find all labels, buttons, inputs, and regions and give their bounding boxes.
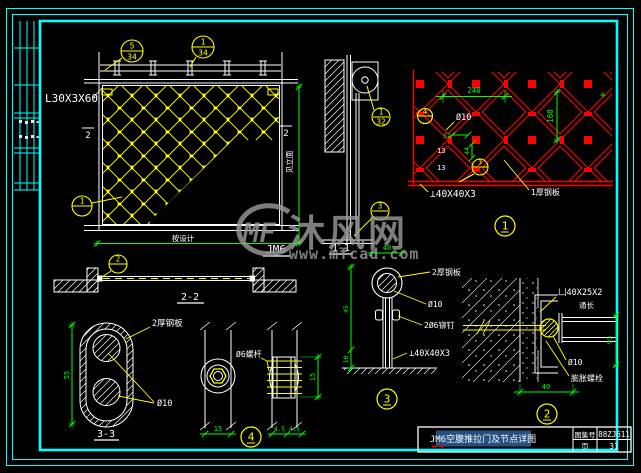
detail-2: 凵40X25X2 通长 93 40 Ø10 膨胀螺栓 2 — [462, 278, 619, 424]
svg-text:4: 4 — [248, 431, 255, 444]
revision-strip — [14, 21, 40, 190]
d2-phi-label: Ø10 — [568, 357, 583, 367]
anchor-bolt-label: 膨胀螺栓 — [571, 373, 603, 383]
mesh-hatch — [103, 86, 279, 224]
svg-text:240: 240 — [467, 86, 481, 95]
detail-1-badge: 1 — [495, 216, 515, 236]
sheet-title[interactable]: JM6空腹推拉门及节点详图 — [430, 433, 536, 445]
watermark-logo: MF — [242, 218, 276, 249]
bolt-head — [540, 319, 558, 337]
detail-3: 40 45 10 2厚钢板 Ø10 2Ø6铆钉 ⊥40X40X3 3 — [342, 244, 461, 409]
section-marker-left: 2 — [82, 128, 94, 141]
section-3-3: 55 2厚钢板 Ø10 3-3 — [63, 318, 183, 440]
watermark: MF 沐风网 www.mfcad.com — [239, 206, 420, 263]
d3-angle-label: ⊥40X40X3 — [409, 349, 450, 359]
detail-2-badge: 2 — [537, 404, 557, 424]
svg-text:32: 32 — [376, 118, 385, 127]
callout-2: 2 — [102, 255, 127, 278]
svg-text:55: 55 — [63, 371, 71, 379]
svg-text:15: 15 — [309, 373, 317, 381]
svg-text:4: 4 — [423, 108, 427, 116]
detail-3-badge: 3 — [377, 389, 397, 409]
cad-sheet: L30X3X60 2 2 见立面 按设计 JM6 5 34 1 34 1 — [0, 0, 641, 473]
svg-text:3: 3 — [478, 159, 482, 167]
title-block: JM6空腹推拉门及节点详图 图集号 88ZJ611 页 31 — [418, 427, 631, 452]
svg-text:45: 45 — [342, 305, 350, 313]
svg-text:4.5: 4.5 — [289, 426, 300, 433]
mesh-angle-label: ⊥40X40X3 — [430, 189, 476, 200]
page-label: 页 — [581, 442, 589, 451]
track-hangers — [113, 61, 267, 75]
svg-text:3: 3 — [378, 202, 383, 211]
length-note: 通长 — [579, 300, 594, 310]
svg-text:4.5: 4.5 — [274, 426, 285, 433]
watermark-url: www.mfcad.com — [289, 245, 419, 263]
svg-text:13: 13 — [437, 164, 445, 172]
svg-text:93: 93 — [606, 336, 614, 344]
s33-phi-label: Ø10 — [157, 398, 172, 409]
width-dim-text: 按设计 — [172, 233, 195, 243]
svg-text:34: 34 — [127, 53, 137, 62]
s33-plate-label: 2厚钢板 — [152, 318, 183, 329]
mesh-phi-label: Ø10 — [456, 112, 471, 123]
cad-canvas: L30X3X60 2 2 见立面 按设计 JM6 5 34 1 34 1 — [0, 0, 641, 473]
page-number: 31 — [609, 442, 618, 451]
section-2-2: 2 2-2 — [54, 255, 296, 304]
atlas-number: 88ZJ611 — [598, 430, 630, 439]
svg-text:160: 160 — [546, 109, 555, 123]
detail-1-mesh: 240 160 52 44 Ø10 13 13 ⊥40X40X3 1厚钢板 4 … — [408, 70, 613, 236]
svg-text:52: 52 — [443, 132, 451, 140]
height-dim-text: 见立面 — [284, 150, 294, 173]
callout-1-34: 1 34 — [190, 36, 214, 67]
svg-text:40: 40 — [542, 383, 550, 391]
section-2-2-title: 2-2 — [181, 292, 199, 303]
mesh-plate-label: 1厚钢板 — [531, 187, 560, 197]
svg-text:1: 1 — [379, 108, 384, 117]
d3-rivet-label: 2Ø6铆钉 — [424, 320, 454, 330]
detail-4-dims: 15 15 4.5 4.5 — [200, 354, 322, 437]
d3-phi-label: Ø10 — [428, 299, 443, 309]
ground-hatch — [344, 369, 436, 375]
svg-text:44: 44 — [463, 147, 471, 155]
d3-plate-label: 2厚钢板 — [432, 267, 461, 277]
detail-4: Ø6螺杆 15 15 4.5 4.5 4 — [200, 322, 322, 447]
svg-text:2: 2 — [116, 255, 121, 264]
svg-text:1: 1 — [502, 220, 509, 233]
detail-3-dims: 45 10 — [342, 264, 354, 371]
svg-text:10: 10 — [342, 356, 350, 364]
atlas-label: 图集号 — [575, 431, 596, 440]
svg-text:3: 3 — [384, 393, 391, 406]
svg-text:5: 5 — [130, 42, 135, 51]
svg-text:1: 1 — [201, 38, 206, 47]
svg-text:13: 13 — [437, 147, 445, 155]
svg-text:2: 2 — [85, 131, 90, 141]
detail-4-badge: 4 — [241, 427, 261, 447]
svg-text:2: 2 — [283, 129, 288, 139]
tiny-table-marks — [19, 120, 39, 139]
channel-label: 凵40X25X2 — [558, 288, 602, 298]
section-3-3-title: 3-3 — [97, 429, 115, 440]
svg-text:15: 15 — [214, 425, 222, 433]
svg-text:2: 2 — [544, 408, 551, 421]
rod-label: Ø6螺杆 — [236, 349, 262, 359]
angle-label: L30X3X60 — [45, 92, 98, 105]
svg-text:34: 34 — [198, 49, 208, 58]
svg-text:1: 1 — [80, 197, 85, 206]
